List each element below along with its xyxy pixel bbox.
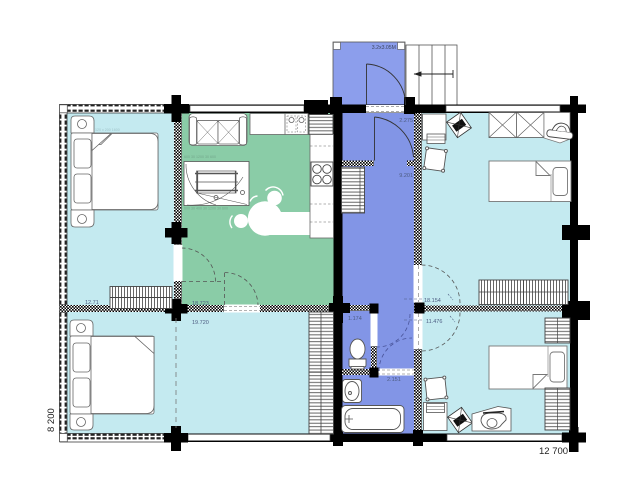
svg-text:11.476: 11.476	[426, 319, 442, 325]
svg-text:8 200: 8 200	[46, 408, 57, 432]
svg-text:2.275: 2.275	[399, 118, 413, 124]
svg-text:120 x 200 1600: 120 x 200 1600	[95, 128, 120, 132]
svg-text:18.154: 18.154	[424, 298, 441, 304]
svg-text:18.723: 18.723	[192, 301, 209, 307]
svg-text:9.201: 9.201	[399, 173, 413, 179]
svg-text:12 700: 12 700	[539, 446, 568, 457]
svg-text:600 30 400 30 1200 30 600: 600 30 400 30 1200 30 600	[184, 207, 228, 211]
svg-text:19.720: 19.720	[192, 320, 209, 326]
svg-text:600 30 1200 30 600: 600 30 1200 30 600	[184, 155, 216, 159]
svg-text:12.71: 12.71	[85, 300, 99, 306]
svg-text:1.174: 1.174	[348, 316, 362, 322]
svg-text:2.151: 2.151	[387, 377, 401, 383]
svg-text:3.2x3.05M: 3.2x3.05M	[372, 45, 396, 51]
